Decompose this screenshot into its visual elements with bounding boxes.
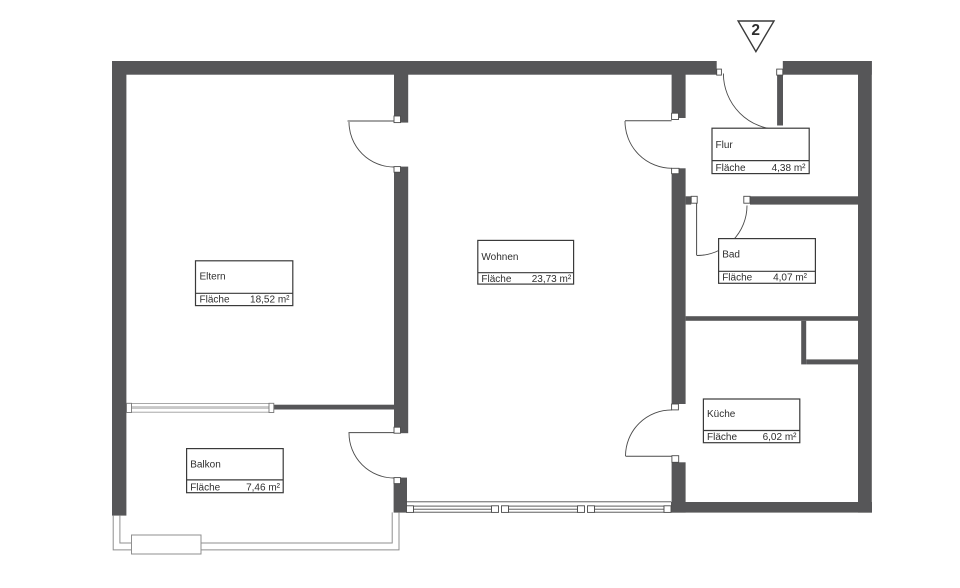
svg-text:Fläche: Fläche [481, 274, 511, 285]
svg-text:4,07 m²: 4,07 m² [773, 273, 808, 284]
svg-text:Fläche: Fläche [722, 273, 752, 284]
svg-text:Flur: Flur [716, 140, 734, 151]
svg-text:Fläche: Fläche [707, 432, 737, 443]
svg-text:Fläche: Fläche [190, 482, 220, 493]
svg-text:4,38 m²: 4,38 m² [772, 163, 807, 174]
svg-text:Eltern: Eltern [200, 272, 226, 283]
svg-text:Fläche: Fläche [716, 163, 746, 174]
svg-text:Küche: Küche [707, 409, 736, 420]
svg-text:2: 2 [751, 22, 760, 39]
svg-text:7,46 m²: 7,46 m² [246, 482, 281, 493]
svg-text:23,73 m²: 23,73 m² [532, 274, 572, 285]
svg-text:Balkon: Balkon [190, 459, 221, 470]
svg-text:Fläche: Fläche [200, 295, 230, 306]
svg-text:Wohnen: Wohnen [481, 252, 518, 263]
svg-text:18,52 m²: 18,52 m² [250, 295, 290, 306]
svg-text:Bad: Bad [722, 249, 740, 260]
svg-text:6,02 m²: 6,02 m² [763, 432, 798, 443]
